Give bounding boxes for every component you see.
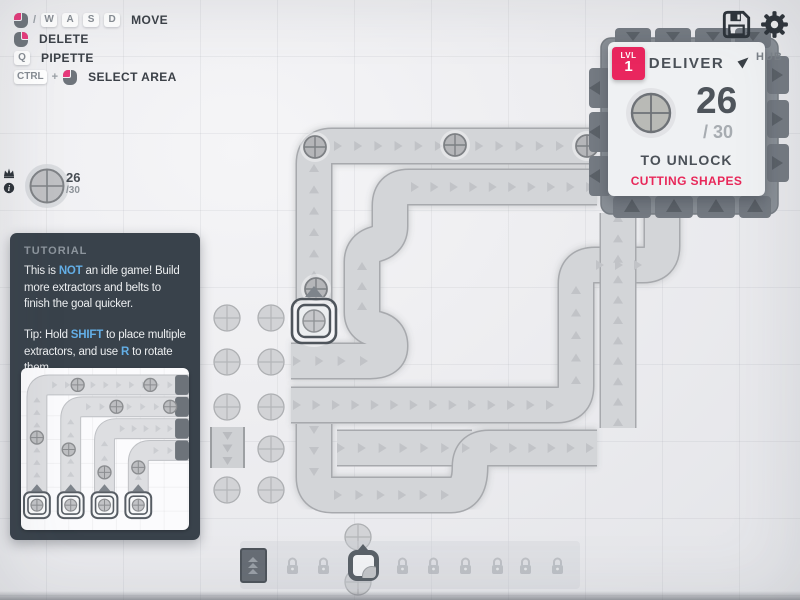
save-icon[interactable] <box>721 9 752 40</box>
mouse-left-icon <box>14 13 28 28</box>
key-s: S <box>83 13 99 27</box>
hint-label-move: MOVE <box>131 13 168 27</box>
hint-label-select-area: SELECT AREA <box>88 70 177 84</box>
top-right-actions <box>721 9 790 40</box>
pin-goal-icon[interactable] <box>737 57 749 69</box>
hint-label-pipette: PIPETTE <box>41 51 94 65</box>
lock-icon <box>395 556 410 575</box>
key-hints: / W A S D MOVE DELETE Q PIPETTE CTRL + S… <box>14 12 177 88</box>
lock-icon <box>518 556 533 575</box>
toolbar-slot-locked[interactable] <box>448 541 482 589</box>
building-toolbar <box>240 541 580 589</box>
key-a: A <box>62 13 78 27</box>
toolbar-slot-locked[interactable] <box>306 541 340 589</box>
crown-and-info-icons: i <box>3 168 19 196</box>
hint-plus: + <box>52 71 58 83</box>
lock-icon <box>490 556 505 575</box>
goal-panel: LVL 1 DELIVER 26 / 30 TO UNLOCK CUTTING … <box>608 42 765 196</box>
lock-icon <box>426 556 441 575</box>
key-w: W <box>41 13 57 27</box>
hint-separator: / <box>33 14 36 26</box>
mouse-right-icon <box>14 32 28 47</box>
toolbar-slot-miner[interactable] <box>346 541 380 589</box>
goal-total: / 30 <box>703 122 733 143</box>
settings-gear-icon[interactable] <box>759 9 790 40</box>
miner-icon <box>348 550 379 581</box>
toolbar-slot-locked[interactable] <box>416 541 450 589</box>
key-q: Q <box>14 51 30 65</box>
hint-row-move: / W A S D MOVE <box>14 12 177 28</box>
tutorial-panel: TUTORIAL This is NOT an idle game! Build… <box>10 233 200 540</box>
hint-row-pipette: Q PIPETTE <box>14 50 177 66</box>
lock-icon <box>550 556 565 575</box>
belt-icon <box>240 548 267 583</box>
lock-icon <box>458 556 473 575</box>
lock-icon <box>285 556 300 575</box>
hub-building-label: HUB <box>756 51 783 63</box>
goal-reward-label: CUTTING SHAPES <box>608 174 765 188</box>
goal-to-unlock-label: TO UNLOCK <box>608 152 765 168</box>
pinned-shape-circle <box>27 166 67 206</box>
key-d: D <box>104 13 120 27</box>
hint-row-select-area: CTRL + SELECT AREA <box>14 69 177 85</box>
pinned-goal-counter: i 26 /30 <box>0 163 120 213</box>
mouse-left-icon <box>63 70 77 85</box>
tutorial-illustration <box>21 368 189 530</box>
hint-row-delete: DELETE <box>14 31 177 47</box>
goal-shape-circle <box>629 91 673 135</box>
game-screen: / W A S D MOVE DELETE Q PIPETTE CTRL + S… <box>0 0 800 600</box>
pinned-delivered-count: 26 <box>66 170 80 185</box>
toolbar-slot-locked[interactable] <box>275 541 309 589</box>
toolbar-slot-locked[interactable] <box>508 541 542 589</box>
key-ctrl: CTRL <box>14 70 47 84</box>
lock-icon <box>316 556 331 575</box>
tutorial-paragraph-1: This is NOT an idle game! Build more ext… <box>24 263 186 313</box>
pinned-goal-total: /30 <box>66 185 80 196</box>
goal-delivered-count: 26 <box>696 80 737 122</box>
tutorial-title: TUTORIAL <box>24 245 186 257</box>
crown-icon <box>4 169 14 177</box>
toolbar-slot-locked[interactable] <box>540 541 574 589</box>
toolbar-slot-belt[interactable] <box>236 541 270 589</box>
toolbar-slot-locked[interactable] <box>385 541 419 589</box>
placed-belt-piece[interactable] <box>210 427 245 468</box>
hint-label-delete: DELETE <box>39 32 89 46</box>
